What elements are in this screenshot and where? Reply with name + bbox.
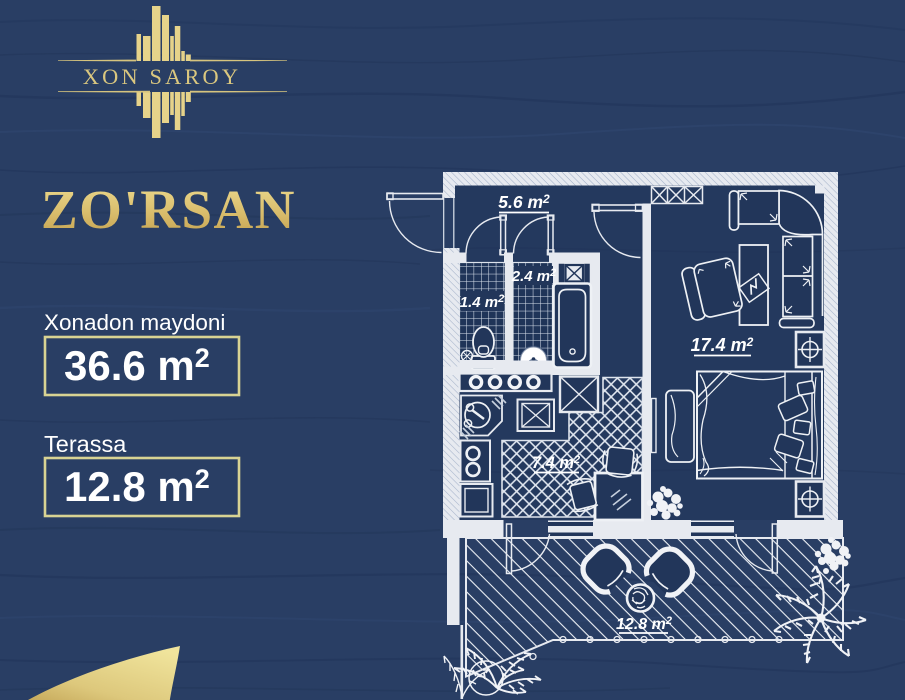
svg-text:36.6 m2: 36.6 m2 xyxy=(64,342,210,389)
svg-text:Xonadon maydoni: Xonadon maydoni xyxy=(44,310,225,335)
svg-text:1.4 m2: 1.4 m2 xyxy=(460,293,504,311)
svg-text:2.4 m2: 2.4 m2 xyxy=(511,267,556,285)
svg-text:5.6 m2: 5.6 m2 xyxy=(498,192,550,212)
svg-text:ZO'RSAN: ZO'RSAN xyxy=(41,179,296,240)
svg-text:XON SAROY: XON SAROY xyxy=(83,64,241,89)
svg-text:7.4 m2: 7.4 m2 xyxy=(532,454,580,472)
svg-text:12.8 m2: 12.8 m2 xyxy=(64,463,210,510)
svg-text:12.8 m2: 12.8 m2 xyxy=(616,615,672,633)
svg-text:17.4 m2: 17.4 m2 xyxy=(691,335,754,355)
svg-text:Terassa: Terassa xyxy=(44,431,127,457)
